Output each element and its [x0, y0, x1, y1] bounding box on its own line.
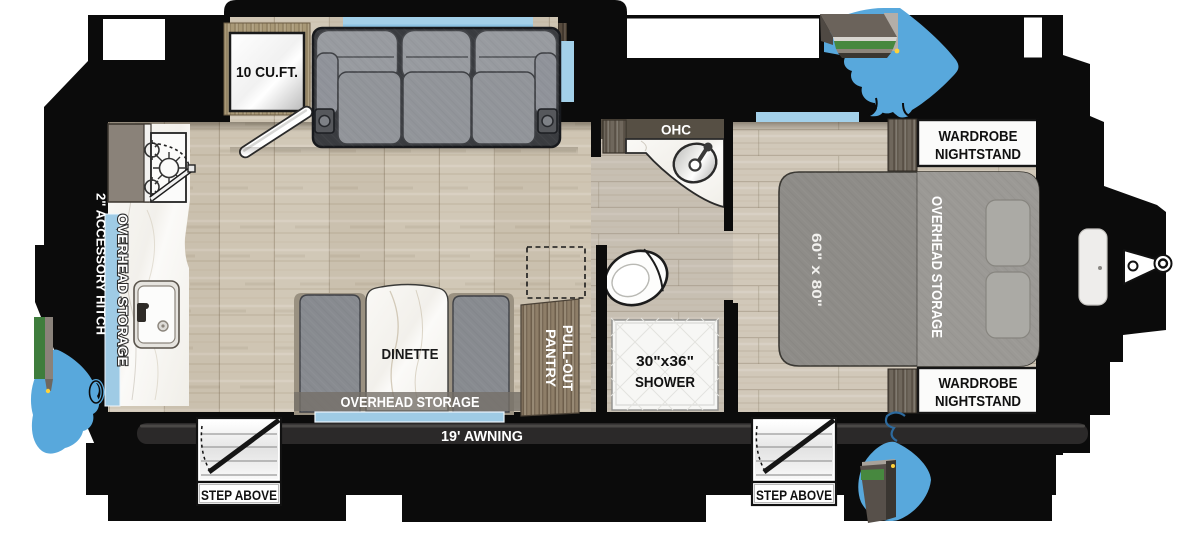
svg-text:OHC: OHC	[661, 123, 691, 138]
svg-text:STEP ABOVE: STEP ABOVE	[756, 487, 832, 503]
svg-text:SHOWER: SHOWER	[635, 374, 695, 391]
svg-text:2" ACCESSORY HITCH: 2" ACCESSORY HITCH	[94, 193, 108, 335]
svg-text:WARDROBE: WARDROBE	[939, 128, 1018, 145]
svg-text:NIGHTSTAND: NIGHTSTAND	[935, 146, 1021, 163]
svg-text:NIGHTSTAND: NIGHTSTAND	[935, 393, 1021, 410]
svg-text:WARDROBE: WARDROBE	[939, 375, 1018, 392]
svg-text:PULL-OUT: PULL-OUT	[560, 325, 575, 392]
svg-text:30"x36": 30"x36"	[636, 353, 694, 370]
svg-text:10 CU.FT.: 10 CU.FT.	[236, 64, 298, 81]
svg-text:OVERHEAD STORAGE: OVERHEAD STORAGE	[928, 196, 944, 338]
svg-text:19' AWNING: 19' AWNING	[441, 429, 523, 445]
svg-text:OVERHEAD STORAGE: OVERHEAD STORAGE	[115, 214, 131, 366]
svg-text:DINETTE: DINETTE	[382, 346, 439, 363]
svg-text:PANTRY: PANTRY	[543, 329, 558, 387]
svg-text:OVERHEAD STORAGE: OVERHEAD STORAGE	[341, 394, 480, 411]
svg-text:60" x 80": 60" x 80"	[809, 233, 824, 307]
svg-text:STEP ABOVE: STEP ABOVE	[201, 487, 277, 503]
